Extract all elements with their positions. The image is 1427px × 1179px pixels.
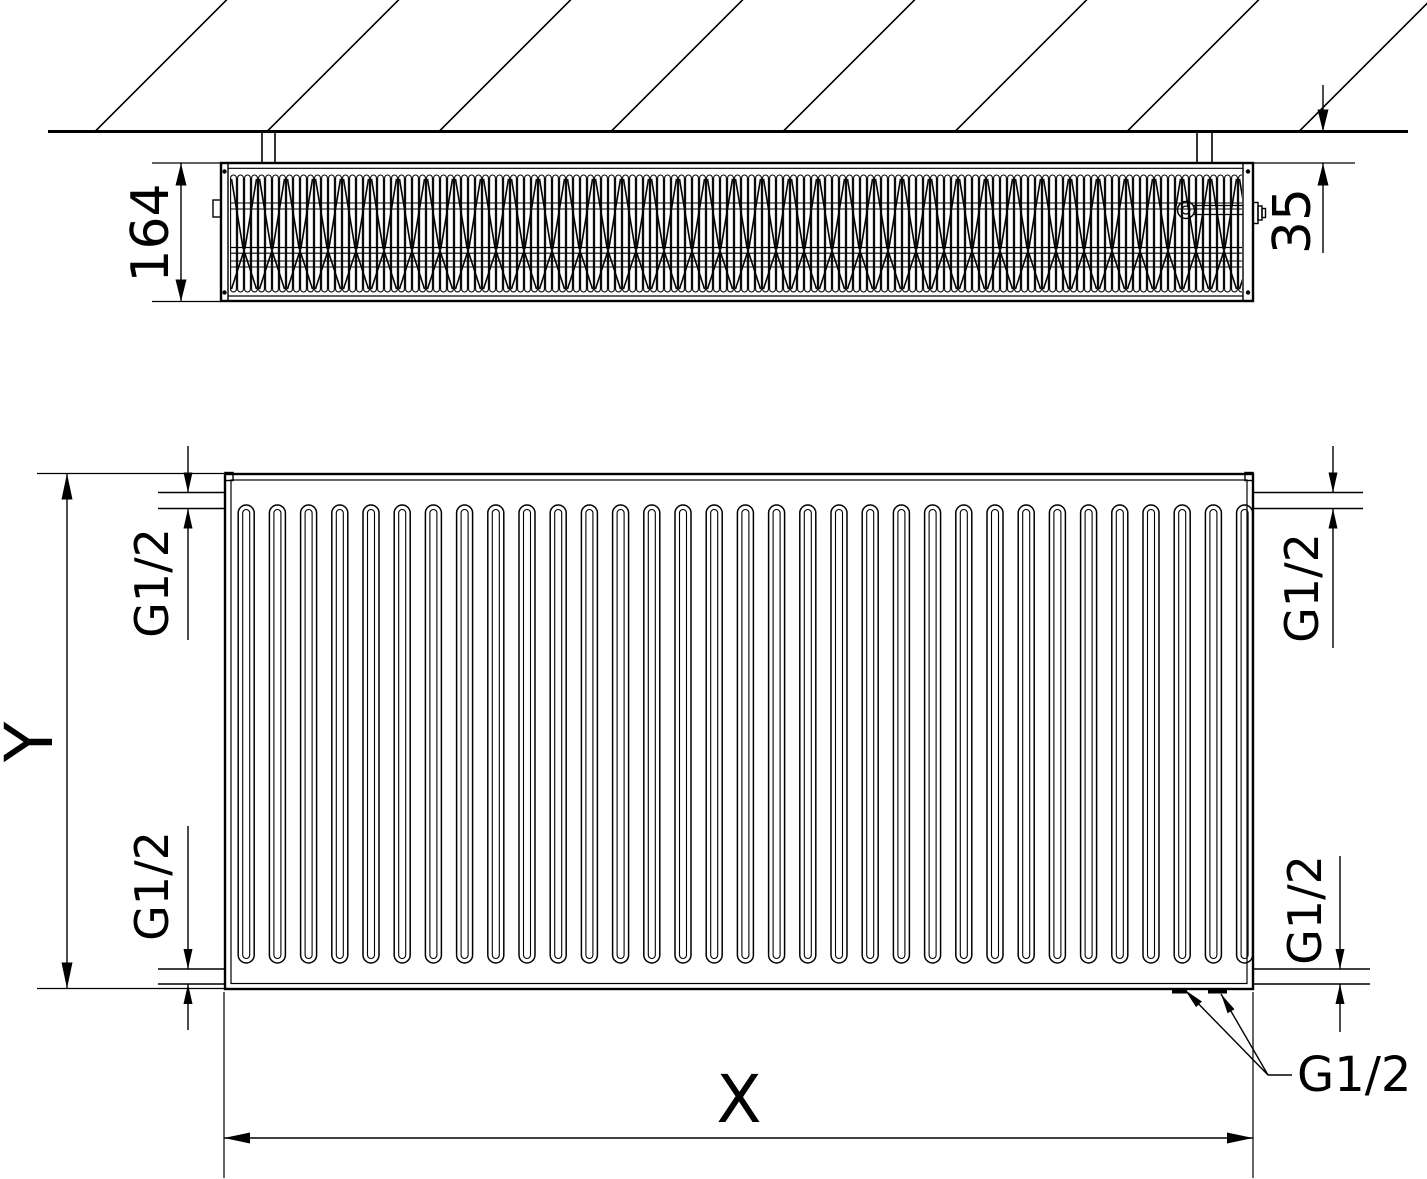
groove-inner <box>1023 510 1030 959</box>
groove-outer <box>706 505 722 963</box>
groove-outer <box>644 505 660 963</box>
thread-label-bottom-left: G1/2 <box>125 831 179 941</box>
groove-outer <box>800 505 816 963</box>
groove-inner <box>430 510 437 959</box>
dimension-length-X: X <box>224 992 1253 1178</box>
groove-outer <box>581 505 597 963</box>
groove-outer <box>769 505 785 963</box>
groove-inner <box>492 510 499 959</box>
groove-outer <box>1018 505 1034 963</box>
groove-outer <box>737 505 753 963</box>
groove-inner <box>617 510 624 959</box>
bottom-connection-left <box>1172 989 1187 994</box>
groove-inner <box>898 510 905 959</box>
groove-outer <box>862 505 878 963</box>
groove-inner <box>1210 510 1217 959</box>
wall-gap-dimension-label: 35 <box>1263 188 1323 254</box>
bottom-connection-right <box>1208 989 1227 994</box>
convector-fins <box>230 172 1242 295</box>
hatch-line <box>1127 0 1263 132</box>
groove-outer <box>269 505 285 963</box>
arrowhead-up-icon <box>1329 509 1338 529</box>
arrowhead-up-icon <box>1336 984 1345 1004</box>
dimension-thread-bottom-left: G1/2 <box>125 826 193 1030</box>
arrowhead-up-icon <box>184 509 193 529</box>
leader-arrowhead-icon <box>1221 994 1235 1013</box>
arrowhead-up-icon <box>62 474 73 500</box>
groove-inner <box>274 510 281 959</box>
wall-bracket-right <box>1197 132 1212 164</box>
groove-inner <box>1148 510 1155 959</box>
groove-outer <box>488 505 504 963</box>
groove-inner <box>742 510 749 959</box>
groove-inner <box>1085 510 1092 959</box>
groove-inner <box>399 510 406 959</box>
arrowhead-down-icon <box>1318 110 1329 132</box>
groove-outer <box>1205 505 1221 963</box>
groove-outer <box>394 505 410 963</box>
hatch-line <box>439 0 575 132</box>
arrowhead-right-icon <box>1227 1133 1253 1144</box>
groove-outer <box>675 505 691 963</box>
thread-label-top-left: G1/2 <box>125 528 179 638</box>
drawing-canvas: 164 35 <box>0 0 1427 1179</box>
connection-stub-top-left <box>158 493 225 509</box>
arrowhead-down-icon <box>184 949 193 969</box>
groove-outer <box>893 505 909 963</box>
dimension-thread-top-left: G1/2 <box>125 446 193 640</box>
groove-outer <box>519 505 535 963</box>
groove-inner <box>711 510 718 959</box>
groove-inner <box>960 510 967 959</box>
groove-outer <box>1081 505 1097 963</box>
connection-stub-top-right <box>1253 493 1363 509</box>
groove-outer <box>831 505 847 963</box>
groove-outer <box>363 505 379 963</box>
arrowhead-down-icon <box>1336 949 1345 969</box>
groove-inner <box>1054 510 1061 959</box>
height-dimension-label: Y <box>0 721 68 763</box>
groove-outer <box>332 505 348 963</box>
groove-outer <box>1174 505 1190 963</box>
groove-inner <box>867 510 874 959</box>
connection-stub-bottom-left <box>158 969 225 984</box>
screw-dot <box>222 169 226 173</box>
groove-outer <box>238 505 254 963</box>
groove-inner <box>804 510 811 959</box>
hatch-line <box>95 0 231 132</box>
arrowhead-down-icon <box>184 473 193 493</box>
arrowhead-up-icon <box>1318 164 1329 186</box>
groove-outer <box>1112 505 1128 963</box>
groove-inner <box>773 510 780 959</box>
groove-inner <box>929 510 936 959</box>
groove-inner <box>305 510 312 959</box>
length-dimension-label: X <box>716 1061 761 1138</box>
groove-inner <box>461 510 468 959</box>
groove-outer <box>550 505 566 963</box>
radiator-technical-drawing: 164 35 <box>0 0 1427 1179</box>
front-body-inner-outline <box>231 480 1247 984</box>
dimension-depth-164: 164 <box>121 163 221 302</box>
thread-callout-bottom: G1/2 <box>1185 990 1411 1103</box>
connection-stub-bottom-right <box>1253 969 1370 984</box>
groove-inner <box>992 510 999 959</box>
dimension-thread-bottom-right: G1/2 <box>1278 855 1345 1032</box>
groove-inner <box>368 510 375 959</box>
arrowhead-up-icon <box>176 164 187 186</box>
groove-inner <box>648 510 655 959</box>
dimension-thread-top-right: G1/2 <box>1275 446 1338 648</box>
arrowhead-down-icon <box>62 963 73 989</box>
groove-inner <box>1116 510 1123 959</box>
groove-inner <box>243 510 250 959</box>
wall-hatching <box>95 0 1427 132</box>
depth-dimension-label: 164 <box>121 183 181 282</box>
screw-dot <box>222 290 226 294</box>
arrowhead-down-icon <box>1329 473 1338 493</box>
groove-outer <box>1237 505 1253 963</box>
groove-outer <box>457 505 473 963</box>
dimension-wall-gap-35: 35 <box>1253 85 1355 254</box>
groove-outer <box>425 505 441 963</box>
groove-inner <box>336 510 343 959</box>
hatch-line <box>955 0 1091 132</box>
groove-inner <box>836 510 843 959</box>
groove-outer <box>613 505 629 963</box>
arrowhead-up-icon <box>184 984 193 1004</box>
screw-dot <box>1246 290 1250 294</box>
groove-outer <box>1049 505 1065 963</box>
wall-bracket-left <box>262 132 275 164</box>
groove-inner <box>1179 510 1186 959</box>
groove-inner <box>524 510 531 959</box>
front-view-radiator <box>158 473 1370 994</box>
top-view-radiator <box>213 132 1266 302</box>
groove-outer <box>1143 505 1159 963</box>
screw-dot <box>1246 169 1250 173</box>
hatch-line <box>783 0 919 132</box>
front-panel-grooves <box>238 505 1252 963</box>
arrowhead-left-icon <box>224 1133 250 1144</box>
dimension-height-Y: Y <box>0 474 230 989</box>
thread-label-top-right: G1/2 <box>1275 533 1329 643</box>
groove-inner <box>680 510 687 959</box>
groove-outer <box>956 505 972 963</box>
groove-inner <box>586 510 593 959</box>
groove-outer <box>925 505 941 963</box>
thread-label-bottom-right: G1/2 <box>1278 855 1332 965</box>
groove-outer <box>301 505 317 963</box>
hatch-line <box>267 0 403 132</box>
groove-inner <box>555 510 562 959</box>
hatch-line <box>611 0 747 132</box>
thread-label-callout: G1/2 <box>1297 1047 1411 1103</box>
groove-outer <box>987 505 1003 963</box>
